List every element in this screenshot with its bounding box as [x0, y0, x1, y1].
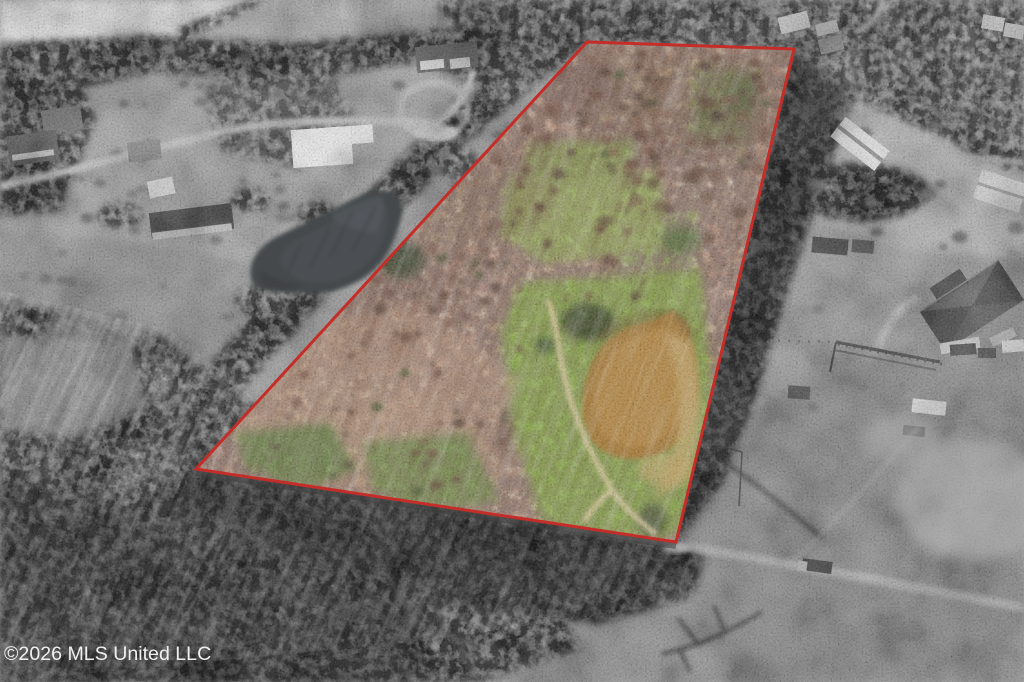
svg-text:©2026 MLS United LLC: ©2026 MLS United LLC — [4, 643, 211, 665]
